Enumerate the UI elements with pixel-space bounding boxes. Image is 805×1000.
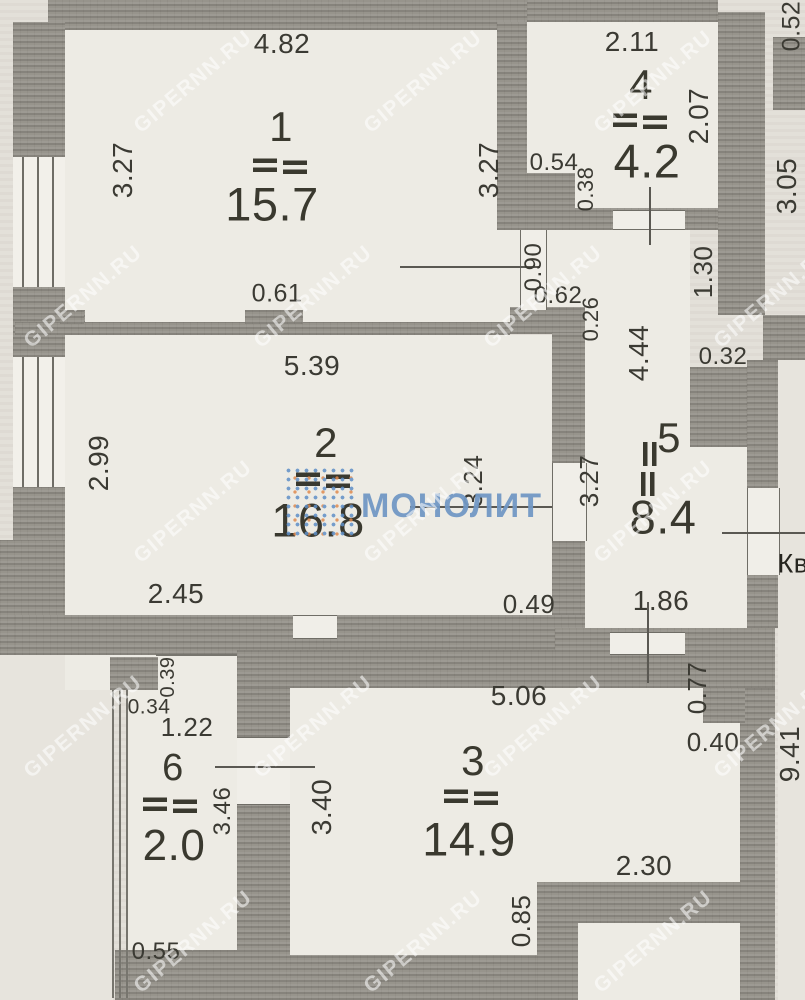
dim-0.61: 0.61 xyxy=(252,282,303,307)
dim-3.27-left: 3.27 xyxy=(109,142,137,199)
dim-2.99: 2.99 xyxy=(85,435,113,492)
dim-1.86: 1.86 xyxy=(633,587,690,615)
room-6-marker xyxy=(143,797,199,814)
wall-right-block xyxy=(763,315,805,360)
neighbor-room-floor-bottom-right xyxy=(578,923,740,1000)
dim-0.55: 0.55 xyxy=(132,940,181,964)
dim-3.40: 3.40 xyxy=(308,779,336,836)
wall-room3-bottom-right-band xyxy=(537,882,775,923)
floor-plan: 4.823.273.270.612.112.070.540.380.523.05… xyxy=(0,0,805,1000)
wall-room5-top-right-block xyxy=(690,367,747,447)
room-1-number: 1 xyxy=(269,106,293,148)
wall-room6-corner-block xyxy=(110,657,158,690)
room-3-marker xyxy=(444,789,500,806)
dim-0.40: 0.40 xyxy=(687,729,740,755)
dim-0.26: 0.26 xyxy=(580,297,602,342)
wall-top-room4 xyxy=(527,0,718,22)
dim-0.39: 0.39 xyxy=(158,657,178,698)
wall-right-mid xyxy=(747,360,778,488)
dim-3.46: 3.46 xyxy=(211,787,235,836)
dim-0.85: 0.85 xyxy=(508,895,534,948)
outside-area-right-strip xyxy=(778,360,805,1000)
wall-neighbor-left xyxy=(537,923,578,1000)
dim-3.27-right: 3.27 xyxy=(475,142,503,199)
monolit-watermark-text: МОНОЛИТ xyxy=(361,489,542,523)
door-opening-room6 xyxy=(237,737,290,805)
room-5-area: 8.4 xyxy=(630,494,697,541)
room-4-number: 4 xyxy=(629,64,653,106)
partition-room6-left xyxy=(112,690,128,998)
door-opening-room2-room3 xyxy=(293,615,337,639)
leader-line-room4-door xyxy=(649,187,651,245)
leader-line-kv-opening xyxy=(722,532,805,534)
wall-left-upper xyxy=(13,22,65,157)
room-3-floor-lower-strip xyxy=(290,882,537,955)
dim-0.62: 0.62 xyxy=(534,284,583,308)
dim-4.44: 4.44 xyxy=(625,325,653,382)
room-2-number: 2 xyxy=(314,422,338,464)
dim-0.77: 0.77 xyxy=(684,662,710,715)
dim-2.07: 2.07 xyxy=(685,88,713,145)
monolit-logo-icon xyxy=(284,466,358,536)
dim-3.05: 3.05 xyxy=(773,158,801,215)
window-room1 xyxy=(13,157,65,287)
dim-5.39: 5.39 xyxy=(284,352,341,380)
side-text-kv: Кв xyxy=(777,551,805,578)
wall-top-room1 xyxy=(48,0,527,30)
dim-9.41: 9.41 xyxy=(776,726,804,783)
dim-1.22: 1.22 xyxy=(161,714,214,740)
room-6-number: 6 xyxy=(162,749,184,787)
room-5-marker xyxy=(641,442,658,498)
room-3-number: 3 xyxy=(461,740,485,782)
wall-corridor-stub xyxy=(510,307,585,334)
dim-0.32: 0.32 xyxy=(699,345,748,369)
dim-4.82: 4.82 xyxy=(254,30,311,58)
wall-room6-room3-lower xyxy=(237,803,290,1000)
room-4-area: 4.2 xyxy=(614,138,681,185)
dim-2.30: 2.30 xyxy=(616,852,673,880)
wall-room1-room4-divider xyxy=(497,22,527,230)
dim-2.11: 2.11 xyxy=(605,28,659,56)
dim-1.30: 1.30 xyxy=(690,246,716,299)
window-room2 xyxy=(13,357,65,487)
room-5-number: 5 xyxy=(657,417,681,459)
wall-room3-bottom xyxy=(290,955,540,1000)
wall-room1-left-step xyxy=(60,310,84,324)
room-1-marker xyxy=(253,158,309,175)
wall-room3-right-upper xyxy=(740,688,775,882)
dim-0.54: 0.54 xyxy=(530,151,579,175)
leader-line-room6-door xyxy=(215,766,315,768)
room-3-area: 14.9 xyxy=(422,816,515,863)
room-1-area: 15.7 xyxy=(225,181,318,228)
leader-line-room1-door xyxy=(400,266,540,268)
wall-room6-room3-upper xyxy=(237,688,290,737)
wall-room1-door-threshold xyxy=(245,310,303,324)
wall-room3-right-lower xyxy=(740,923,775,1000)
wall-right-lower xyxy=(747,575,778,628)
wall-room2-room5-upper xyxy=(552,333,585,463)
wall-left-lower xyxy=(13,487,65,542)
wall-right-upper xyxy=(718,12,765,315)
room-6-area: 2.0 xyxy=(143,824,206,868)
wall-room4-notch-block xyxy=(527,173,575,230)
dim-0.52: 0.52 xyxy=(780,1,805,52)
dim-0.38: 0.38 xyxy=(575,167,597,212)
outside-area-bottom-left xyxy=(0,655,113,1000)
room-4-marker xyxy=(613,113,669,130)
dim-3.27-mid: 3.27 xyxy=(576,455,602,508)
dim-2.45: 2.45 xyxy=(148,580,205,608)
dim-0.49: 0.49 xyxy=(503,591,556,617)
dim-5.06: 5.06 xyxy=(491,682,548,710)
